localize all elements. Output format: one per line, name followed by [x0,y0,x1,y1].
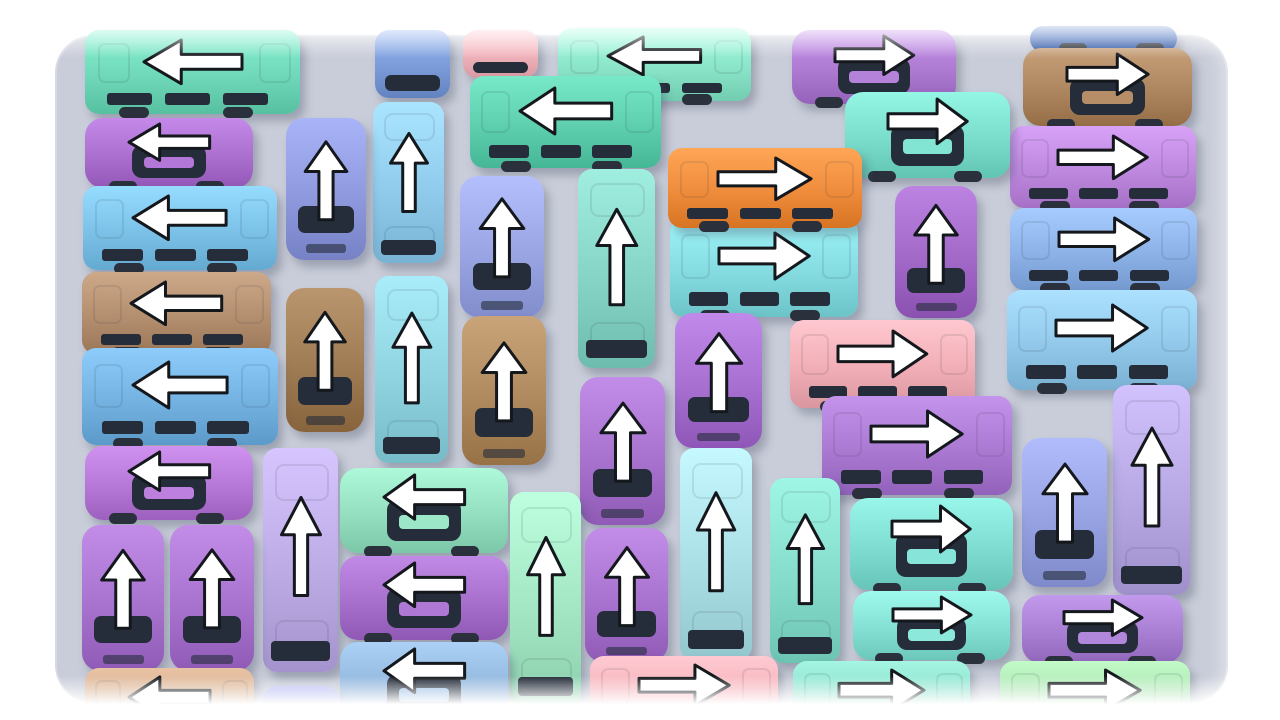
bumper [481,301,523,309]
roof-seam [1021,221,1049,259]
side-window [682,83,723,93]
roof-seam [833,412,862,458]
side-window [1029,188,1068,199]
side-window [155,249,196,261]
vehicle-brown-car-col3[interactable] [286,288,364,432]
windshield [586,340,646,358]
arrow-left-icon [131,282,222,325]
vehicle-teal-car-right-row7[interactable] [853,591,1010,660]
vehicle-purple-car-center-col8[interactable] [895,186,977,318]
roof-seam [680,161,709,199]
vehicle-sky-bus-row3-left[interactable] [83,186,277,270]
arrow-right-icon [1067,54,1148,95]
vehicle-teal-car-top-right-center[interactable] [845,92,1010,178]
vehicle-sky-bus-right-row4[interactable] [1007,290,1197,390]
side-window [207,421,248,435]
arrow-left-icon [133,362,227,408]
bumper [601,509,644,518]
roof-seam [259,43,291,82]
roof-seam [601,668,629,705]
arrow-right-icon [719,233,809,279]
vehicle-pink-bus-center[interactable] [790,320,975,408]
arrow-right-icon [639,665,729,706]
arrow-up-icon [482,343,526,421]
side-window [1129,365,1169,379]
side-window [740,292,779,306]
arrow-up-icon [305,141,347,219]
windshield [383,437,440,454]
roof-seam [625,91,654,134]
side-window [687,208,728,219]
windshield [273,712,329,720]
roof-seam [240,199,269,238]
bumper [606,647,648,655]
wheel [699,221,729,232]
arrow-up-icon [102,550,145,628]
side-window [223,93,268,105]
vehicle-purple-car-bottom-right[interactable] [1022,595,1183,663]
vehicle-mint-vbus-col5-bottom[interactable] [510,492,581,707]
roof-seam [275,464,329,502]
wheel [109,513,137,524]
arrow-right-icon [839,670,924,711]
vehicle-green-bus-bottom-right[interactable] [1000,661,1190,720]
wheel [815,97,843,108]
arrow-up-icon [600,403,644,481]
bumper [191,655,233,664]
wheel [501,161,531,172]
side-window [107,93,152,105]
windshield [518,677,573,696]
vehicle-cyan-vbus-col4[interactable] [375,276,448,463]
roof-seam [1161,306,1190,352]
wheel [119,107,149,118]
arrow-up-icon [605,548,648,626]
vehicle-periwinkle-car-col5[interactable] [460,176,544,317]
side-window [1129,188,1168,199]
arrow-right-icon [893,597,971,633]
arrow-left-icon [520,88,612,134]
bumper [306,244,346,253]
vehicle-pale-cyan-vbus-col7[interactable] [680,448,752,660]
vehicle-purple-car-bottom-left-2[interactable] [170,525,254,671]
side-window [1079,270,1118,281]
side-window [541,145,581,158]
vehicle-purple-car-center-left-row7[interactable] [340,556,508,640]
roof-seam [1154,673,1183,710]
arrow-right-icon [871,411,962,457]
vehicle-brown-car-top-right[interactable] [1023,48,1192,126]
side-window [1079,188,1118,199]
windshield [473,62,529,73]
wheel [954,171,982,182]
vehicle-orchid-bus-center-right[interactable] [822,396,1012,495]
windshield [381,240,436,254]
roof-seam [936,673,963,710]
arrow-left-icon [384,475,465,519]
side-window [1026,365,1066,379]
roof-seam [235,285,264,323]
vehicle-orange-bus-center[interactable] [668,148,862,228]
roof-seam [822,234,850,280]
vehicle-purple-car-bottom-left-1[interactable] [82,525,164,671]
roof-seam [1161,139,1189,177]
side-window [155,421,196,435]
roof-seam [1018,306,1047,352]
wheel [1037,383,1067,394]
arrow-right-icon [1058,136,1147,179]
wheel [223,107,253,118]
arrow-left-icon [384,649,465,693]
roof-seam [570,40,599,75]
vehicle-purple-car-col6-mid[interactable] [580,377,665,525]
roof-seam [94,364,123,409]
roof-seam [714,40,743,75]
vehicle-periwinkle-van-bottom-partial[interactable] [263,686,339,720]
bumper [306,416,345,425]
side-window [102,421,143,435]
vehicle-orchid-bus-right-row2[interactable] [1010,126,1196,208]
roof-seam [801,334,829,375]
roof-seam [98,43,130,82]
vehicle-sky-vbus-col4[interactable] [373,102,444,263]
vehicle-tan-bus-bottom-left[interactable] [85,668,254,720]
roof-seam [742,668,770,705]
roof-seam [825,161,854,199]
arrow-right-icon [1049,670,1140,711]
vehicle-teal-vbus-col6[interactable] [578,169,655,368]
side-window [841,470,881,484]
arrow-up-icon [480,199,524,277]
roof-seam [681,234,709,280]
roof-seam [804,673,831,710]
vehicle-blue-bus-row5-left[interactable] [82,348,278,445]
arrow-left-icon [608,37,701,75]
vehicle-pink-car-top-center[interactable] [463,30,538,78]
game-screen [0,0,1280,720]
vehicle-purple-car-col6-bottom[interactable] [585,528,668,662]
arrow-left-icon [144,40,242,84]
vehicle-cyan-bus-center-row3[interactable] [670,218,858,317]
arrow-right-icon [892,506,970,552]
roof-seam [1021,139,1049,177]
side-window [152,334,192,345]
roof-seam [93,285,122,323]
side-window [1029,270,1068,281]
roof-seam [1011,673,1040,710]
arrow-up-icon [915,205,958,283]
arrow-right-icon [888,99,967,144]
vehicle-lavender-vbus-col3[interactable] [263,448,338,672]
vehicle-periwinkle-car-right[interactable] [1022,438,1107,587]
arrow-left-icon [129,452,210,490]
arrow-up-icon [390,134,427,212]
vehicle-teal-bus-row1-left[interactable] [85,30,300,114]
side-window [101,334,141,345]
bumper [1043,571,1086,580]
roof-seam [95,199,124,238]
arrow-left-icon [129,677,210,718]
side-window [892,470,932,484]
vehicle-lavender-vbus-right[interactable] [1113,385,1190,595]
side-window [689,292,728,306]
vehicle-steel-car-bottom-left-center[interactable] [340,642,508,720]
arrow-left-icon [129,124,210,160]
vehicle-orchid-car-row6-left[interactable] [85,446,253,520]
vehicle-aqua-vbus-col8[interactable] [770,478,840,663]
side-window [1077,365,1117,379]
side-window [710,715,749,720]
side-window [790,292,829,306]
arrow-up-icon [1131,428,1171,526]
side-window [203,334,243,345]
arrow-up-icon [696,333,741,411]
vehicle-periwinkle-car-col3-top[interactable] [286,118,366,260]
roof-seam [481,91,510,134]
side-window [1130,270,1169,281]
vehicle-brown-car-col5[interactable] [462,316,546,465]
roof-seam [1161,221,1189,259]
side-window [207,249,248,261]
arrow-up-icon [527,538,564,636]
vehicle-pink-bus-bottom-center[interactable] [590,656,778,720]
side-window [944,470,984,484]
side-window [592,145,632,158]
arrow-up-icon [305,312,346,390]
bumper [916,303,957,311]
side-window [102,249,143,261]
windshield [688,630,744,649]
windshield [1121,566,1181,585]
wheel [868,171,896,182]
side-window [609,715,648,720]
arrow-up-icon [787,515,823,604]
vehicle-purple-car-row2-left[interactable] [85,118,253,188]
arrow-up-icon [596,209,636,305]
arrow-up-icon [281,498,320,596]
vehicle-aqua-bus-bottom-center-right[interactable] [793,661,970,720]
side-window [165,93,210,105]
arrow-up-icon [697,492,734,590]
arrow-right-icon [835,36,914,74]
arrow-up-icon [393,313,431,403]
side-window [740,208,781,219]
wheel [792,221,822,232]
arrow-up-icon [1042,465,1086,543]
roof-seam [222,680,248,717]
wheel [196,513,224,524]
wheel [682,94,712,105]
side-window [660,715,699,720]
windshield [271,641,330,661]
vehicle-purple-car-center-col7[interactable] [675,313,762,448]
vehicle-blue-van-top-center[interactable] [375,30,450,98]
roof-seam [95,680,121,717]
arrow-right-icon [1056,305,1147,351]
roof-seam [241,364,270,409]
bumper [103,655,144,664]
bumper [697,433,741,441]
arrow-left-icon [133,196,226,240]
side-window [792,208,833,219]
vehicle-cornflower-bus-right-row3[interactable] [1010,208,1197,290]
arrow-right-icon [1064,600,1142,635]
vehicle-mint-car-center-left[interactable] [340,468,508,553]
roof-seam [976,412,1005,458]
bumper [483,449,525,458]
side-window [489,145,529,158]
vehicle-brown-bus-row4-left[interactable] [82,272,271,354]
vehicle-teal-bus-row2-center[interactable] [470,76,661,168]
windshield [778,637,833,654]
windshield [385,75,441,91]
roof-seam [940,334,968,375]
arrow-right-icon [838,331,927,377]
vehicle-teal-car-right-mid[interactable] [850,498,1013,590]
arrow-right-icon [718,158,811,200]
arrow-right-icon [1059,218,1149,261]
arrow-up-icon [190,550,234,628]
arrow-left-icon [384,563,465,607]
